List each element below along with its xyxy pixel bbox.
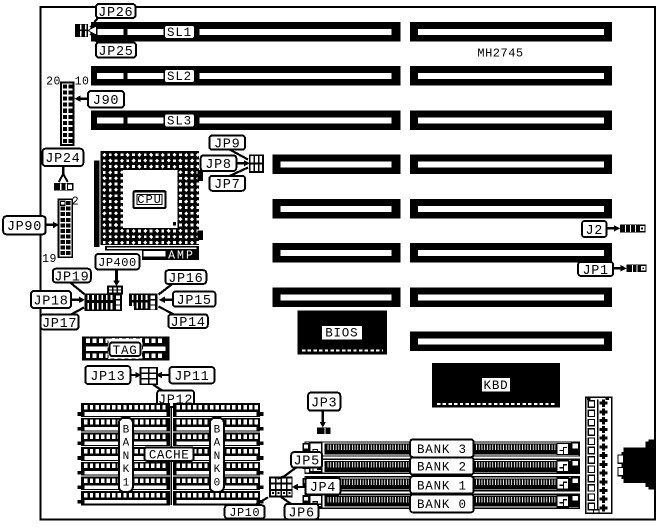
svg-text:SL3: SL3 (167, 114, 192, 128)
svg-text:JP90: JP90 (7, 220, 42, 235)
svg-text:BANK 1: BANK 1 (417, 479, 467, 493)
svg-text:A: A (123, 438, 130, 450)
svg-text:SL1: SL1 (167, 26, 192, 40)
svg-text:JP3: JP3 (311, 397, 337, 412)
svg-text:JP10: JP10 (229, 506, 260, 520)
svg-text:JP15: JP15 (177, 294, 212, 309)
svg-text:BANK 3: BANK 3 (417, 443, 467, 457)
svg-text:JP13: JP13 (90, 370, 125, 385)
svg-text:KBD: KBD (484, 379, 509, 393)
svg-text:JP18: JP18 (33, 294, 68, 309)
svg-text:19: 19 (42, 253, 57, 266)
svg-text:K: K (123, 464, 130, 476)
svg-text:B: B (214, 424, 221, 436)
svg-text:BIOS: BIOS (325, 327, 358, 341)
svg-text:SL2: SL2 (167, 70, 192, 84)
svg-text:JP16: JP16 (168, 272, 203, 287)
svg-text:BANK 2: BANK 2 (417, 461, 467, 475)
svg-text:N: N (123, 451, 130, 463)
svg-text:AMP: AMP (168, 250, 195, 263)
svg-text:JP25: JP25 (98, 45, 133, 60)
svg-text:JP26: JP26 (98, 6, 133, 21)
svg-text:B: B (123, 424, 130, 436)
svg-text:JP11: JP11 (174, 370, 209, 385)
svg-text:20: 20 (46, 76, 61, 89)
svg-text:10: 10 (75, 76, 90, 89)
svg-text:CPU: CPU (137, 193, 162, 207)
svg-text:JP9: JP9 (214, 137, 240, 152)
svg-text:N: N (214, 451, 221, 463)
svg-text:MH2745: MH2745 (477, 47, 523, 61)
svg-text:0: 0 (214, 477, 221, 489)
svg-text:JP19: JP19 (54, 270, 89, 285)
svg-text:JP8: JP8 (205, 158, 231, 173)
svg-text:TAG: TAG (113, 344, 138, 358)
svg-text:JP17: JP17 (42, 317, 77, 332)
svg-text:K: K (214, 464, 221, 476)
svg-text:BANK 0: BANK 0 (417, 498, 467, 512)
svg-text:1: 1 (123, 477, 130, 489)
svg-text:JP400: JP400 (98, 256, 137, 270)
svg-text:2: 2 (72, 196, 79, 209)
svg-text:JP4: JP4 (310, 481, 336, 496)
svg-text:J90: J90 (93, 94, 119, 109)
svg-text:JP6: JP6 (288, 506, 314, 521)
svg-text:JP24: JP24 (45, 152, 80, 167)
svg-text:JP7: JP7 (214, 178, 240, 193)
svg-text:JP14: JP14 (170, 316, 205, 331)
svg-text:JP1: JP1 (582, 264, 608, 279)
svg-text:A: A (214, 438, 221, 450)
svg-text:J2: J2 (585, 224, 603, 239)
svg-text:CACHE: CACHE (149, 449, 190, 463)
svg-text:JP5: JP5 (293, 455, 319, 470)
